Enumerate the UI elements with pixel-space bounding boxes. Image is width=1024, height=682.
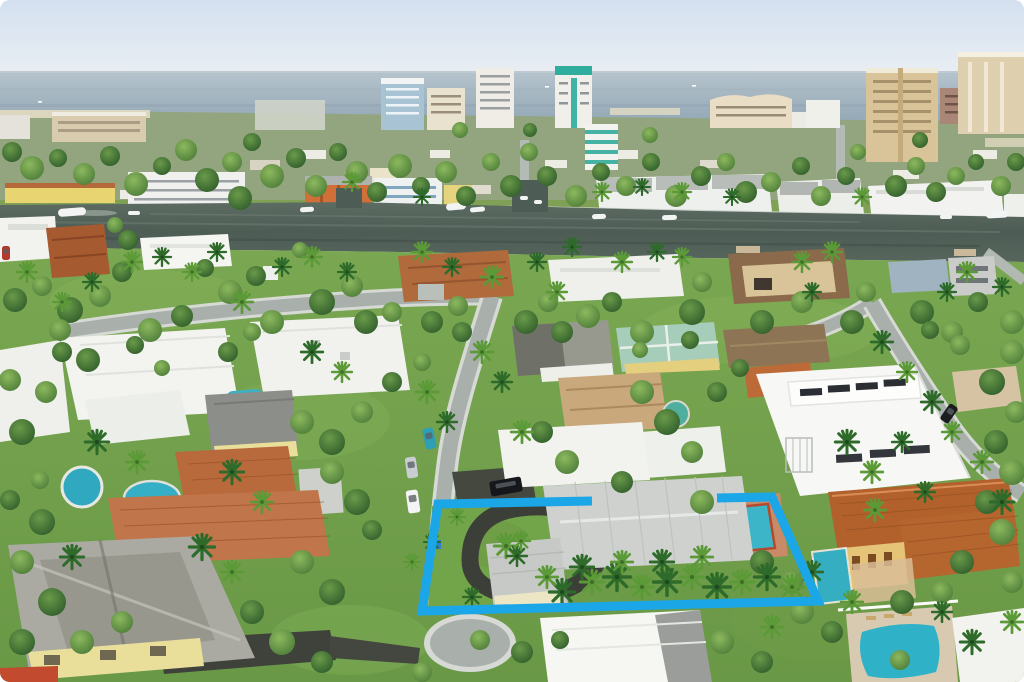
- aerial-photo: Aerial drone photo of a coastal resident…: [0, 0, 1024, 682]
- gray-two-story-home: [948, 256, 998, 296]
- dock: [736, 246, 760, 253]
- midrise-white: [806, 100, 840, 128]
- round-pool: [62, 467, 102, 507]
- subject-house-roof: [543, 476, 754, 570]
- subject-house-wing: [486, 538, 568, 612]
- highrise-tan-tower: [866, 68, 938, 162]
- highrise-blue-glass: [381, 78, 424, 130]
- canal-left: [336, 188, 362, 208]
- highrise-teal-top: [555, 66, 592, 128]
- tile-roof-corner: [0, 666, 58, 682]
- cul-de-sac: [430, 619, 510, 667]
- highrise-white-tower: [476, 68, 514, 128]
- highrise-corner-cream: [958, 52, 1024, 134]
- highrise-left-edge: [0, 115, 30, 139]
- mediterranean-home: [46, 224, 110, 278]
- highrise-beige-condo: [52, 112, 146, 142]
- midrise-faint: [255, 100, 325, 130]
- blue-gray-home: [888, 259, 950, 293]
- aerial-photo-svg: [0, 0, 1024, 682]
- highrise-cream-hotel: [710, 94, 792, 128]
- yellow-condo: [5, 183, 115, 203]
